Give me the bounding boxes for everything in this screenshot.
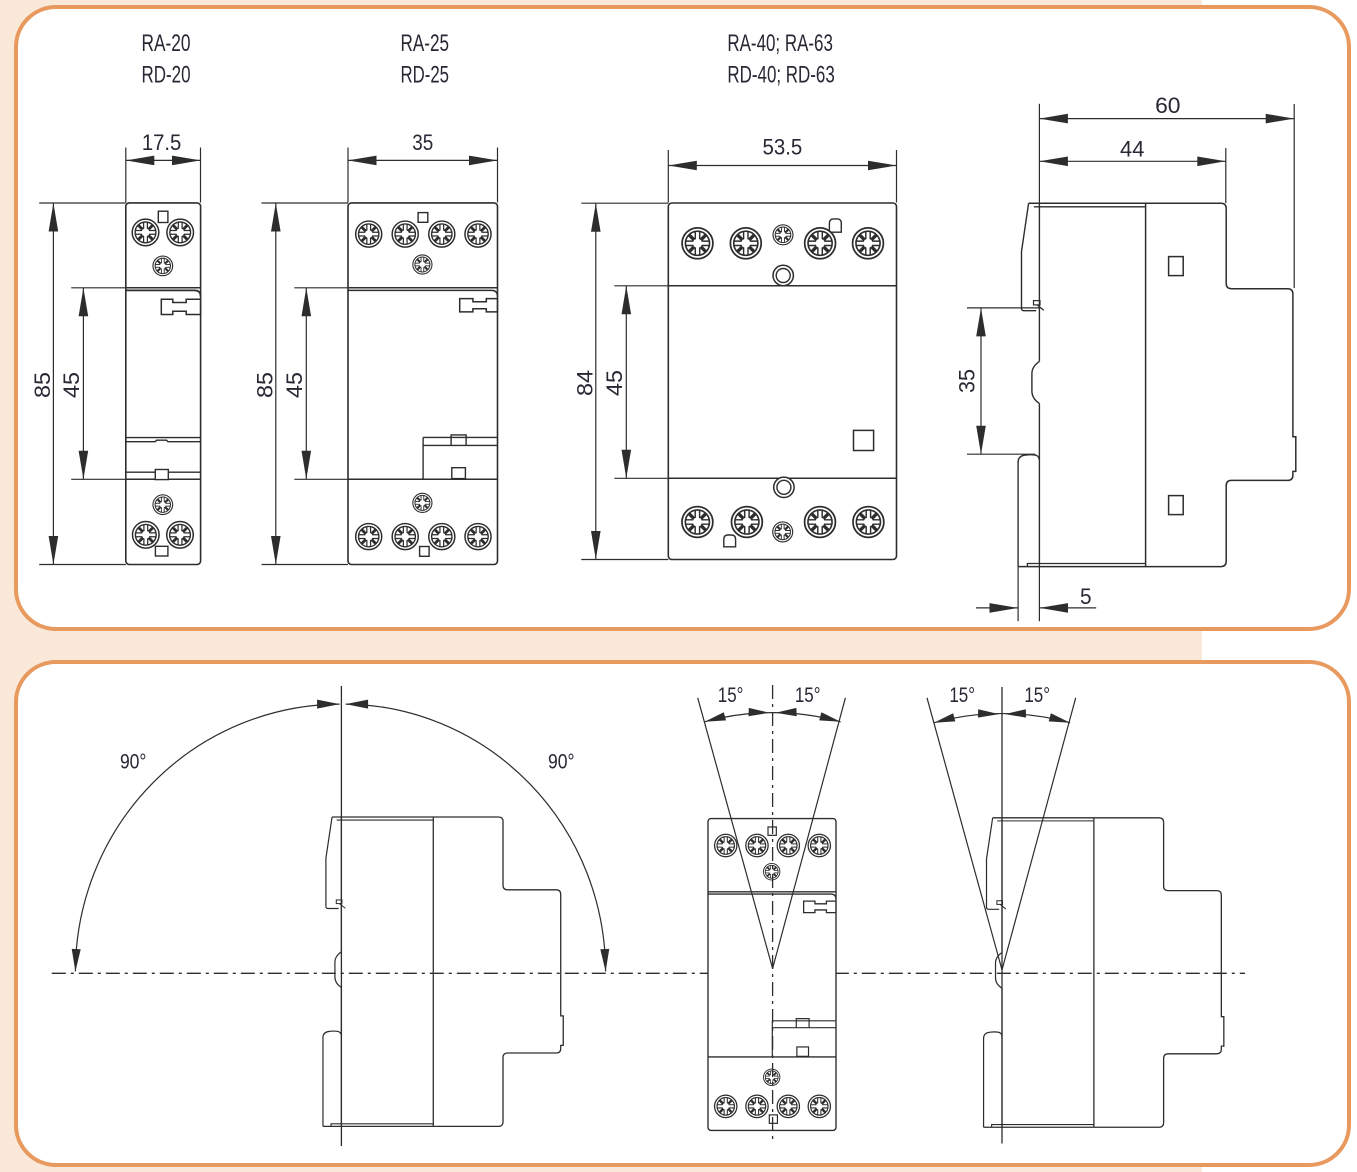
svg-text:85: 85 bbox=[253, 372, 278, 398]
svg-text:35: 35 bbox=[955, 369, 980, 393]
svg-text:90°: 90° bbox=[120, 750, 147, 774]
svg-text:44: 44 bbox=[1120, 137, 1144, 162]
svg-text:RA-25: RA-25 bbox=[401, 30, 450, 57]
svg-text:53.5: 53.5 bbox=[763, 135, 803, 160]
svg-text:RA-20: RA-20 bbox=[142, 30, 191, 57]
svg-text:5: 5 bbox=[1080, 584, 1092, 609]
svg-text:15°: 15° bbox=[1024, 683, 1050, 707]
svg-text:84: 84 bbox=[572, 370, 597, 396]
svg-text:17.5: 17.5 bbox=[142, 130, 182, 155]
svg-text:15°: 15° bbox=[795, 683, 821, 707]
svg-text:60: 60 bbox=[1155, 93, 1180, 118]
svg-text:RD-20: RD-20 bbox=[142, 62, 191, 89]
svg-text:15°: 15° bbox=[949, 683, 975, 707]
svg-text:15°: 15° bbox=[718, 683, 744, 707]
svg-text:45: 45 bbox=[59, 372, 84, 398]
svg-text:85: 85 bbox=[30, 372, 55, 398]
svg-text:45: 45 bbox=[282, 372, 307, 398]
svg-text:45: 45 bbox=[602, 370, 627, 396]
svg-text:RD-25: RD-25 bbox=[401, 62, 450, 89]
svg-text:RD-40; RD-63: RD-40; RD-63 bbox=[727, 62, 834, 89]
svg-text:90°: 90° bbox=[548, 750, 575, 774]
svg-text:RA-40; RA-63: RA-40; RA-63 bbox=[727, 30, 833, 57]
svg-text:35: 35 bbox=[412, 130, 433, 155]
